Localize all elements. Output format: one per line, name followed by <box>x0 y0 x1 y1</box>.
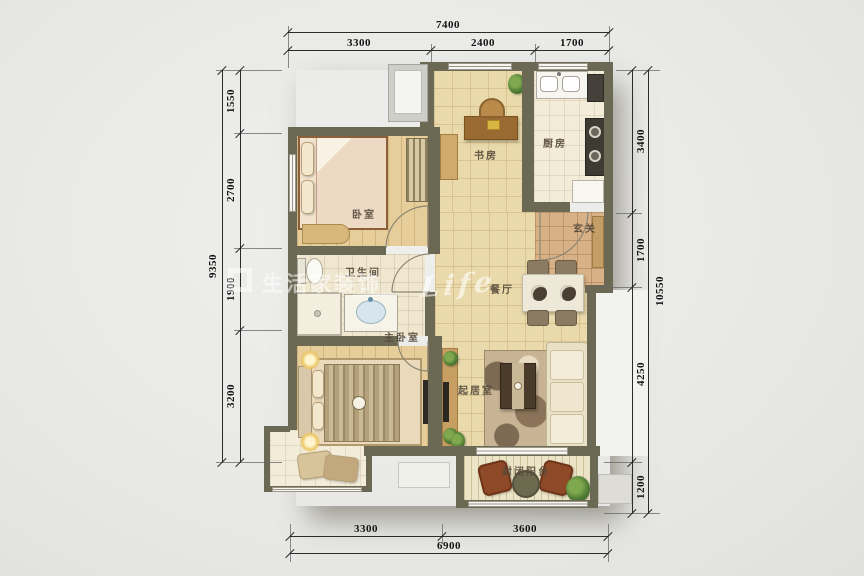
wall-balcony-right <box>590 452 598 508</box>
room-label-foyer: 玄关 <box>573 220 597 235</box>
bedroom-window <box>289 154 296 212</box>
plant-icon <box>566 476 590 502</box>
sofa-cushion <box>550 350 584 380</box>
dim-right-seg3: 1200 <box>635 465 647 509</box>
wall-bath-bottom <box>288 336 398 346</box>
watermark-logo-icon <box>228 268 252 292</box>
sofa-cushion <box>550 382 584 412</box>
dim-bottom-seg0: 3300 <box>336 523 396 535</box>
dim-top-seg1: 2400 <box>453 37 513 49</box>
living-balcony-window <box>476 447 568 455</box>
pillow-icon <box>312 402 324 430</box>
lamp-glow-icon <box>300 350 320 370</box>
wall-kitchen-study <box>522 62 534 212</box>
faucet-icon <box>557 72 561 76</box>
wall-bay-right <box>366 452 372 492</box>
dim-right-total-line <box>648 70 649 513</box>
dim-ext <box>216 462 282 463</box>
floorplan-canvas: 书房 厨房 玄关 卧室 卫生间 餐厅 主卧室 起居室 封闭阳台 7400 330… <box>0 0 864 576</box>
dim-ext <box>604 462 642 463</box>
dim-left-seg3: 3200 <box>225 374 237 418</box>
dim-right-seg2: 4250 <box>635 352 647 396</box>
dim-bottom-total-line <box>290 553 608 554</box>
dim-left-seg-line <box>240 70 241 462</box>
balcony-window <box>468 501 588 507</box>
room-label-kitchen: 厨房 <box>543 135 567 150</box>
dim-right-seg-line <box>632 70 633 513</box>
place-setting-icon <box>531 285 547 301</box>
range-hood <box>587 74 604 102</box>
study-chair <box>479 98 505 118</box>
wall-bedroom-right <box>428 136 440 254</box>
dim-top-seg0: 3300 <box>329 37 389 49</box>
dim-bottom-total: 6900 <box>419 540 479 552</box>
plant-icon <box>443 351 458 366</box>
burner-icon <box>589 150 601 162</box>
duvet-medallion-icon <box>352 396 366 410</box>
dim-top-seg2: 1700 <box>542 37 602 49</box>
dim-left-seg1: 2700 <box>225 168 237 212</box>
dim-left-seg0: 1550 <box>225 79 237 123</box>
pillow-icon <box>312 370 324 398</box>
laptop-icon <box>487 120 500 130</box>
bay-cushion <box>323 454 360 483</box>
dim-ext <box>600 287 642 288</box>
dim-ext <box>216 70 282 71</box>
dim-top-total-line <box>288 32 609 33</box>
dim-bottom-seg1: 3600 <box>495 523 555 535</box>
watermark-text-script: Life <box>419 264 498 304</box>
dim-top-seg-line <box>288 50 609 51</box>
sink-basin-right <box>562 76 580 92</box>
dim-right-total: 10550 <box>654 269 666 313</box>
dim-ext <box>616 70 660 71</box>
place-setting-icon <box>560 285 576 301</box>
wall-right-upper <box>604 62 613 292</box>
dim-left-total: 9350 <box>207 244 219 288</box>
master-headboard <box>298 366 312 438</box>
kitchen-window <box>538 63 588 70</box>
wall-right-lower <box>587 285 596 456</box>
wall-master-top-stub <box>428 336 442 346</box>
dim-ext <box>608 524 609 562</box>
cup-icon <box>514 382 522 390</box>
dining-chair <box>555 310 577 326</box>
dim-ext <box>290 524 291 562</box>
pillow-icon <box>301 180 314 214</box>
dim-top-total: 7400 <box>418 19 478 31</box>
ac-platform-inner <box>394 70 422 114</box>
lamp-glow-icon <box>300 432 320 452</box>
hall-cabinet <box>440 134 458 180</box>
sofa-cushion <box>550 414 584 444</box>
dim-right-seg0: 3400 <box>635 119 647 163</box>
fridge <box>572 180 604 203</box>
burner-icon <box>589 126 601 138</box>
dim-left-total-line <box>222 70 223 462</box>
dining-chair <box>527 310 549 326</box>
wash-basin <box>356 300 386 324</box>
bay-window <box>272 487 362 492</box>
pillow-icon <box>301 142 314 176</box>
exterior-step <box>598 474 632 504</box>
shower-drain-icon <box>314 310 321 317</box>
room-label-master: 主卧室 <box>384 329 420 344</box>
wall-bedroom-bottom <box>288 246 386 255</box>
wall-bay-left <box>264 430 270 492</box>
room-label-bedroom: 卧室 <box>352 206 376 221</box>
room-label-balcony: 封闭阳台 <box>502 463 550 478</box>
living-tv-icon <box>443 382 449 422</box>
bedroom-bench <box>302 224 350 244</box>
wall-master-right <box>428 346 442 446</box>
sink-basin-left <box>540 76 558 92</box>
wall-master-bottom <box>364 446 444 456</box>
room-label-living: 起居室 <box>458 382 494 397</box>
room-label-study: 书房 <box>474 147 498 162</box>
exterior-box <box>398 462 450 488</box>
wall-bedroom-top <box>288 127 440 136</box>
wall-kitchen-bottom <box>522 202 570 212</box>
study-window <box>448 63 512 70</box>
dim-right-seg1: 1700 <box>635 228 647 272</box>
dim-bottom-seg-line <box>290 536 608 537</box>
wardrobe <box>406 138 428 202</box>
